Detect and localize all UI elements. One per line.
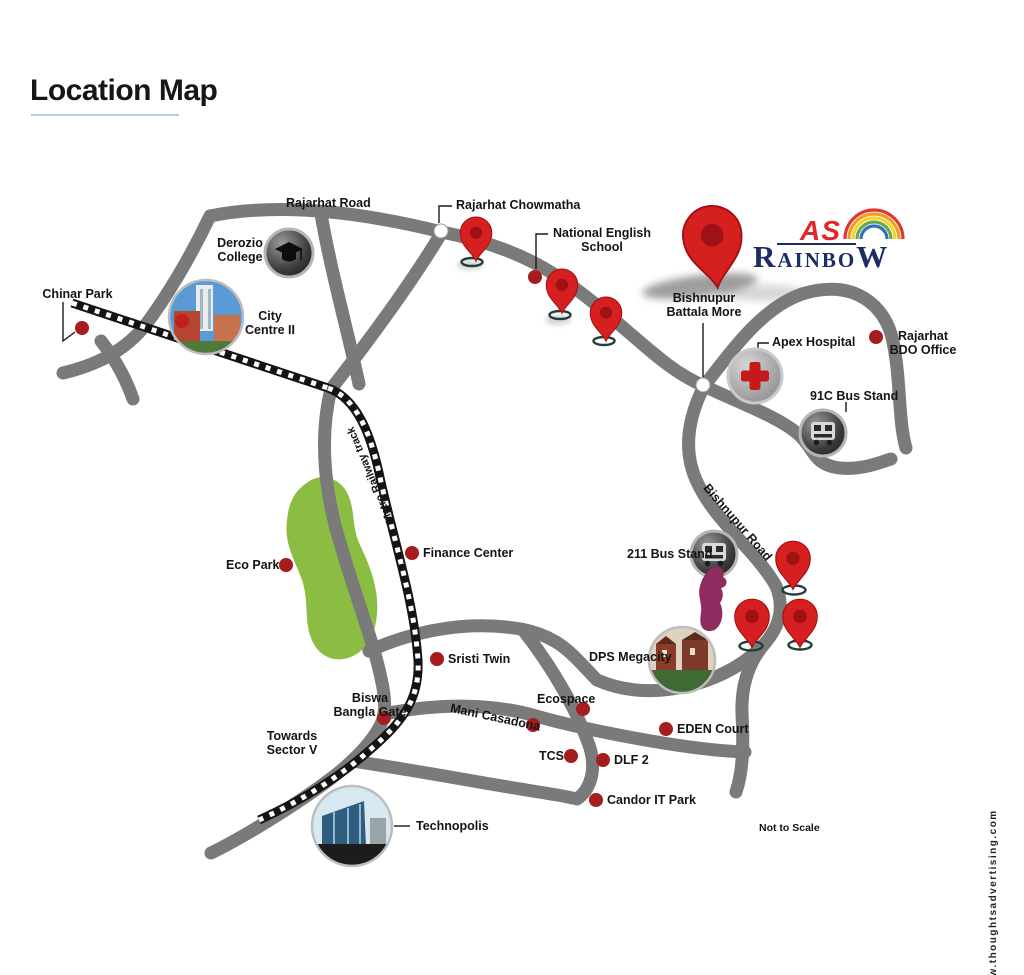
label-derozio-college: Derozio College <box>205 236 275 265</box>
technopolis-photo-icon <box>311 785 393 868</box>
location-pins <box>460 217 817 647</box>
label-finance-center: Finance Center <box>423 546 513 560</box>
label-technopolis: Technopolis <box>416 819 489 833</box>
junction-bishnupur-battala-more <box>696 378 710 392</box>
dot-finance-center <box>405 546 419 560</box>
label-rajarhat-chowmatha: Rajarhat Chowmatha <box>456 198 580 212</box>
label-not-to-scale: Not to Scale <box>759 822 820 834</box>
dot-dlf2 <box>596 753 610 767</box>
brand-logo: AS RAINBOW <box>745 205 920 280</box>
title-underline <box>31 114 179 116</box>
website-credit: www.thoughtsadvertising.com <box>988 809 999 975</box>
dot-candor-it-park <box>589 793 603 807</box>
road-mid-vertical <box>321 214 359 384</box>
label-211-bus-stand: 211 Bus Stand <box>627 547 712 561</box>
pin-site-3 <box>783 599 818 647</box>
label-ecospace: Ecospace <box>537 692 595 706</box>
label-dlf2: DLF 2 <box>614 753 649 767</box>
hospital-cross-icon <box>728 349 782 403</box>
dot-tcs <box>564 749 578 763</box>
road-bottom <box>352 761 572 798</box>
label-national-english-school: National English School <box>543 226 661 255</box>
rainbow-icon <box>841 207 907 241</box>
logo-letter-w: W <box>856 239 889 274</box>
logo-letter-r: R <box>753 239 777 274</box>
label-sristi-twin: Sristi Twin <box>448 652 510 666</box>
location-map-page: Location Map AS RAINBOW Chinar Park Dero… <box>0 0 1024 975</box>
label-eden-court: EDEN Court <box>677 722 749 736</box>
label-rajarhat-road: Rajarhat Road <box>286 196 371 210</box>
dot-sristi-twin <box>430 652 444 666</box>
label-dps-megacity: DPS Megacity <box>589 650 672 664</box>
city-centre-photo-icon <box>168 279 244 355</box>
dot-national-english-school <box>528 270 542 284</box>
map-canvas <box>0 0 1024 975</box>
label-91c-bus-stand: 91C Bus Stand <box>810 389 898 403</box>
dot-eden-court <box>659 722 673 736</box>
label-apex-hospital: Apex Hospital <box>772 335 855 349</box>
merlion-icon <box>699 567 726 631</box>
dot-eco-park <box>279 558 293 572</box>
label-rajarhat-bdo-office: Rajarhat BDO Office <box>884 329 962 358</box>
label-city-centre: City Centre II <box>240 309 300 338</box>
label-towards-sector-v: Towards Sector V <box>252 729 332 758</box>
label-chinar-park: Chinar Park <box>30 287 125 301</box>
logo-rainbow-text: RAINBOW <box>753 239 889 275</box>
logo-letters-mid: AINBO <box>777 243 856 272</box>
pin-road-2 <box>546 269 578 313</box>
pin-road-3 <box>590 297 622 341</box>
junction-rajarhat-chowmatha <box>434 224 448 238</box>
dot-chinar-park <box>75 321 89 335</box>
dot-rajarhat-bdo <box>869 330 883 344</box>
label-tcs: TCS <box>539 749 564 763</box>
page-title: Location Map <box>30 74 217 108</box>
label-eco-park: Eco Park <box>226 558 280 572</box>
label-biswa-bangla-gate: Biswa Bangla Gate <box>328 691 412 720</box>
pin-chowmatha <box>460 217 492 261</box>
label-bishnupur-battala-more: Bishnupur Battala More <box>656 291 752 320</box>
label-candor-it-park: Candor IT Park <box>607 793 696 807</box>
bus-icon-91c <box>800 410 846 456</box>
